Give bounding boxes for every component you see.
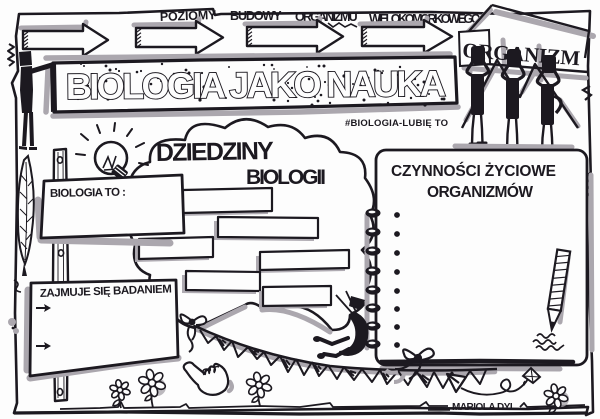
svg-text:BIOLOGIA TO :: BIOLOGIA TO :	[50, 187, 126, 200]
svg-text:MARIOLA DYL: MARIOLA DYL	[452, 402, 516, 413]
svg-text:BIOLOGII: BIOLOGII	[246, 166, 326, 189]
svg-text:BIOLOGIA JAKO NAUKA: BIOLOGIA JAKO NAUKA	[66, 63, 446, 107]
svg-text:BUDOWY: BUDOWY	[230, 9, 282, 23]
svg-text:ORGANIZMÓW: ORGANIZMÓW	[427, 183, 534, 201]
svg-text:DZIEDZINY: DZIEDZINY	[156, 137, 275, 167]
svg-text:#BIOLOGIA-LUBIĘ TO: #BIOLOGIA-LUBIĘ TO	[345, 118, 448, 129]
svg-text:CZYNNOŚCI ŻYCIOWE: CZYNNOŚCI ŻYCIOWE	[391, 162, 557, 180]
svg-text:POZIOMY: POZIOMY	[160, 8, 218, 24]
